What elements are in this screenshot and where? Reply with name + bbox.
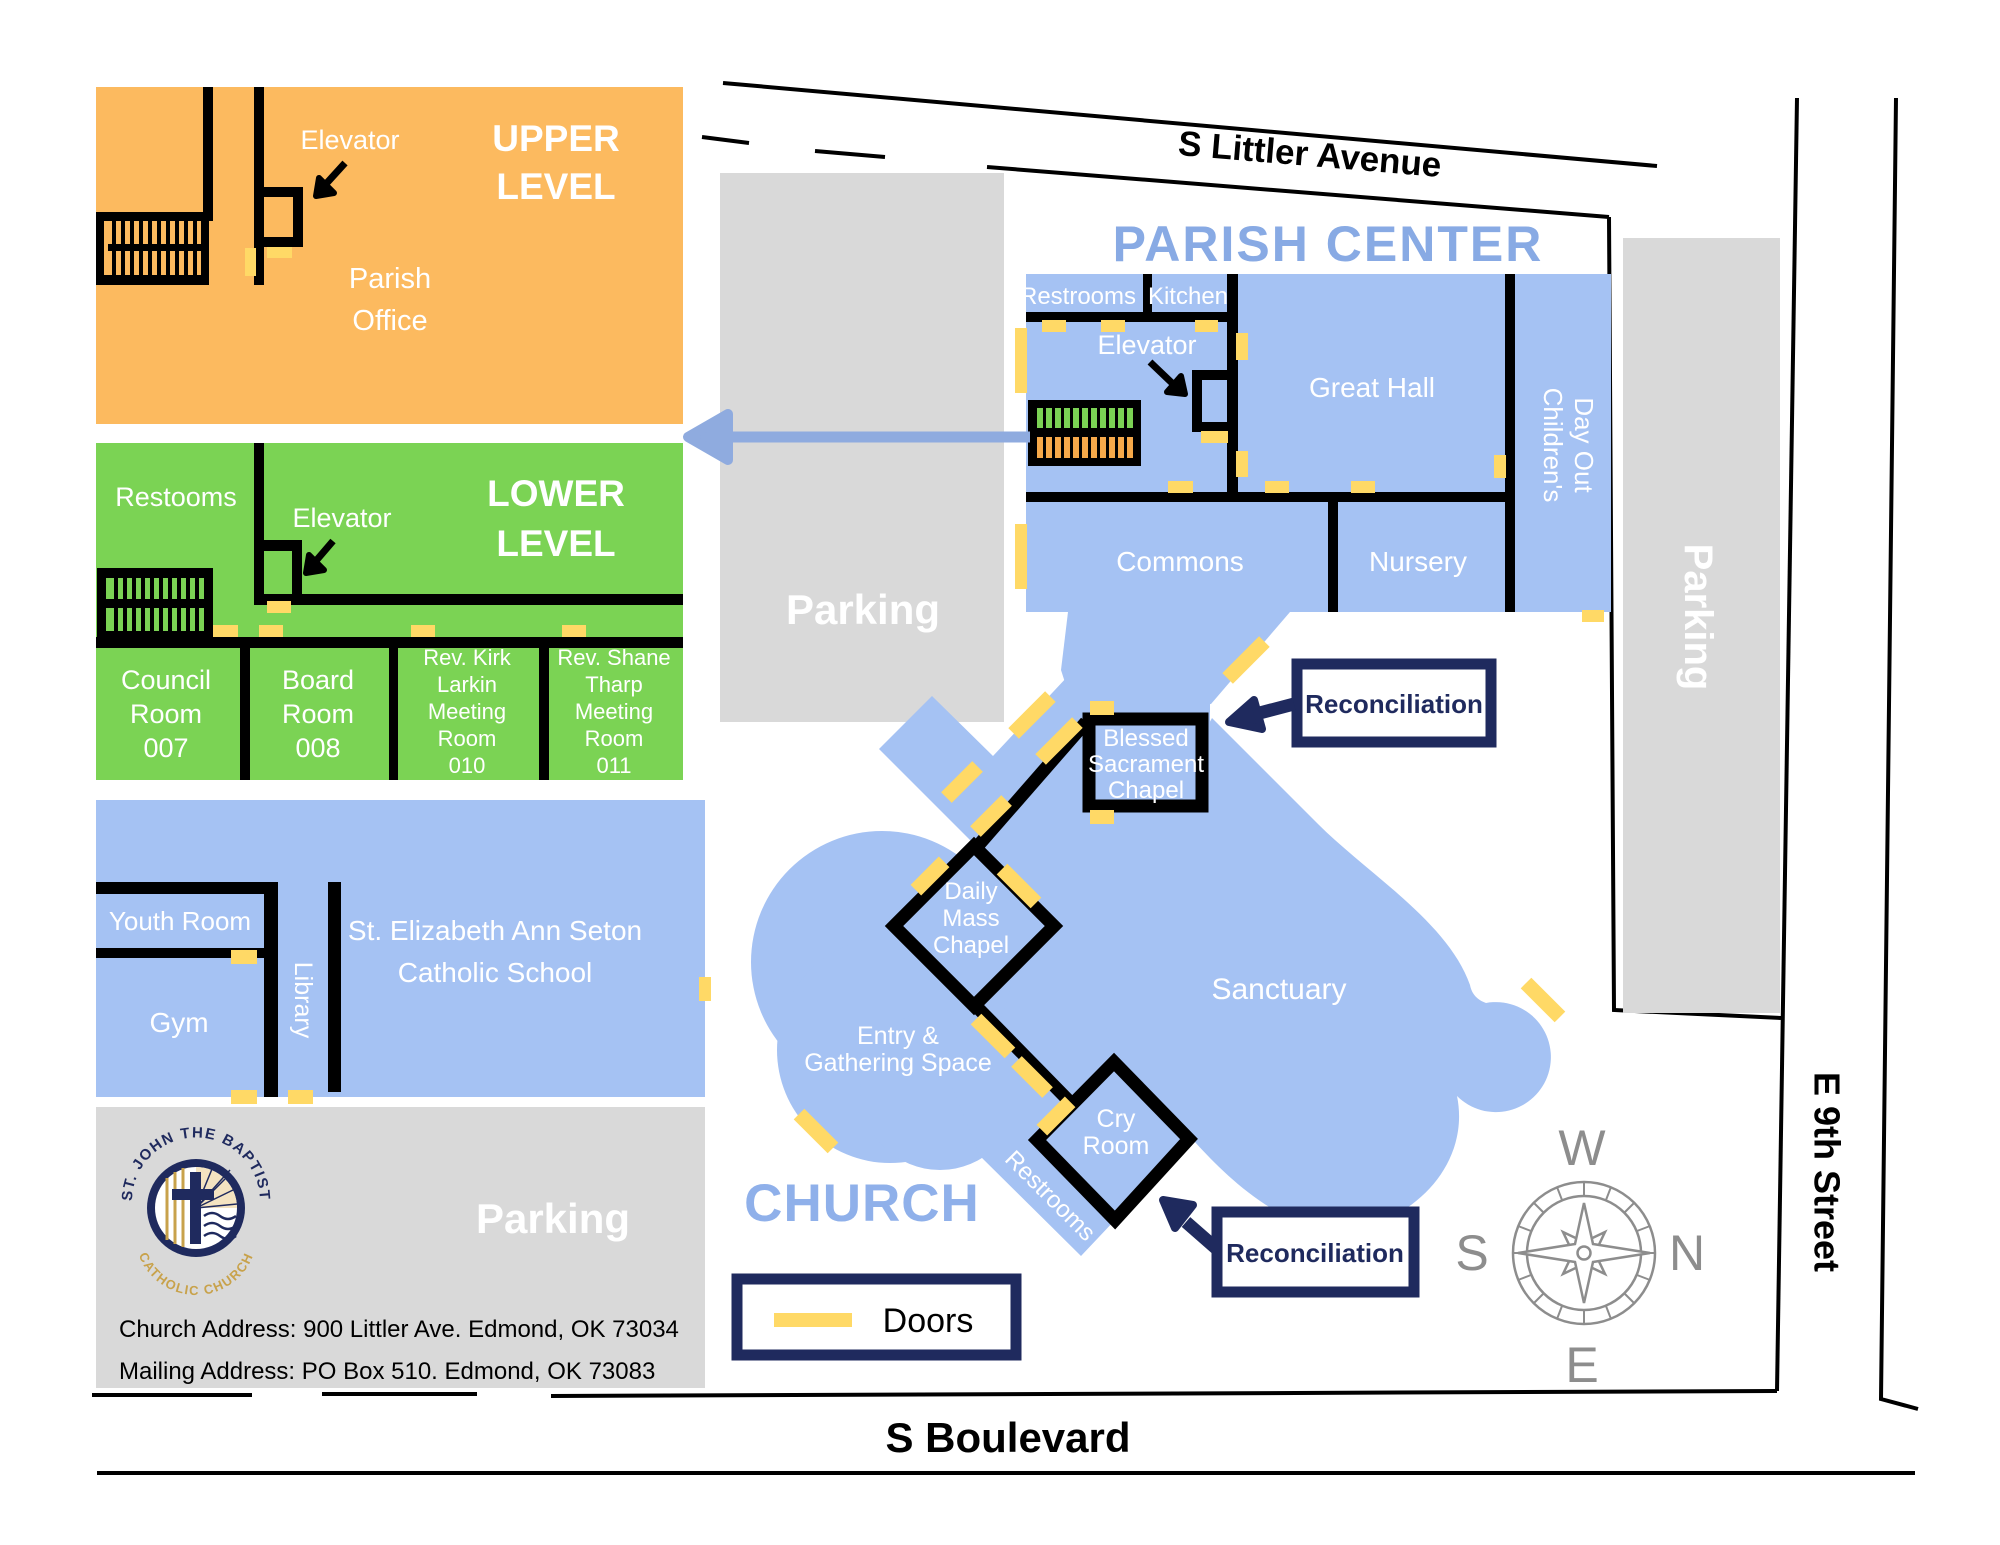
svg-text:E: E	[1565, 1337, 1598, 1393]
svg-text:Parking: Parking	[1676, 544, 1720, 691]
svg-text:Larkin: Larkin	[437, 672, 497, 697]
svg-text:Youth Room: Youth Room	[109, 906, 251, 936]
svg-text:UPPER: UPPER	[492, 118, 619, 159]
svg-text:Restooms: Restooms	[115, 482, 237, 512]
svg-text:LEVEL: LEVEL	[496, 166, 615, 207]
svg-text:Gym: Gym	[149, 1007, 208, 1038]
svg-text:PARISH CENTER: PARISH CENTER	[1113, 216, 1544, 272]
svg-text:Rev. Shane: Rev. Shane	[557, 645, 670, 670]
svg-text:Restrooms: Restrooms	[1020, 283, 1136, 310]
svg-text:Room: Room	[282, 699, 354, 729]
svg-text:LOWER: LOWER	[487, 473, 625, 514]
svg-text:Sacrament: Sacrament	[1088, 751, 1204, 778]
svg-text:Office: Office	[352, 305, 427, 337]
svg-text:Doors: Doors	[883, 1302, 974, 1340]
svg-text:Commons: Commons	[1116, 546, 1244, 577]
svg-text:LEVEL: LEVEL	[496, 523, 615, 564]
svg-text:Sanctuary: Sanctuary	[1211, 973, 1346, 1006]
svg-text:Meeting: Meeting	[575, 699, 653, 724]
svg-text:Entry &: Entry &	[857, 1022, 939, 1050]
svg-text:Elevator: Elevator	[292, 503, 391, 533]
svg-text:Chapel: Chapel	[1108, 777, 1184, 804]
svg-text:Kitchen: Kitchen	[1148, 283, 1228, 310]
svg-text:CHURCH: CHURCH	[744, 1174, 980, 1233]
svg-text:S: S	[1455, 1225, 1488, 1281]
svg-text:Reconciliation: Reconciliation	[1226, 1238, 1404, 1268]
svg-text:Library: Library	[289, 962, 317, 1039]
svg-text:Parking: Parking	[476, 1195, 630, 1242]
svg-text:W: W	[1558, 1120, 1606, 1176]
svg-text:Nursery: Nursery	[1369, 546, 1467, 577]
svg-text:Mass: Mass	[942, 905, 999, 932]
svg-text:Reconciliation: Reconciliation	[1305, 689, 1483, 719]
svg-text:Great Hall: Great Hall	[1309, 372, 1435, 403]
svg-text:Blessed: Blessed	[1103, 725, 1188, 752]
svg-text:Room: Room	[130, 699, 202, 729]
svg-text:Cry: Cry	[1097, 1105, 1136, 1133]
svg-text:007: 007	[143, 733, 188, 763]
svg-text:N: N	[1669, 1225, 1705, 1281]
svg-text:E 9th Street: E 9th Street	[1807, 1072, 1848, 1272]
svg-text:008: 008	[295, 733, 340, 763]
svg-text:Elevator: Elevator	[300, 125, 399, 155]
svg-text:Room: Room	[585, 726, 644, 751]
svg-text:011: 011	[596, 753, 631, 778]
svg-text:Room: Room	[1083, 1132, 1150, 1160]
svg-text:010: 010	[449, 753, 486, 778]
svg-text:Catholic School: Catholic School	[398, 957, 593, 988]
svg-text:Church Address: 900 Littler Av: Church Address: 900 Littler Ave. Edmond,…	[119, 1316, 679, 1343]
svg-text:Rev. Kirk: Rev. Kirk	[423, 645, 512, 670]
svg-text:Elevator: Elevator	[1097, 330, 1196, 360]
svg-text:Parking: Parking	[786, 586, 940, 633]
svg-text:Board: Board	[282, 665, 354, 695]
svg-text:St. Elizabeth Ann Seton: St. Elizabeth Ann Seton	[348, 915, 642, 946]
svg-text:Council: Council	[121, 665, 211, 695]
svg-text:Children'sDay Out: Children'sDay Out	[1538, 388, 1599, 503]
svg-text:Gathering Space: Gathering Space	[804, 1049, 992, 1077]
svg-text:Mailing Address: PO Box 510. E: Mailing Address: PO Box 510. Edmond, OK …	[119, 1358, 655, 1385]
svg-text:S Boulevard: S Boulevard	[885, 1414, 1130, 1461]
svg-text:Meeting: Meeting	[428, 699, 506, 724]
svg-text:Chapel: Chapel	[933, 932, 1009, 959]
svg-text:Daily: Daily	[944, 878, 997, 905]
svg-text:Room: Room	[438, 726, 497, 751]
svg-text:Tharp: Tharp	[585, 672, 642, 697]
svg-text:Parish: Parish	[349, 263, 431, 295]
